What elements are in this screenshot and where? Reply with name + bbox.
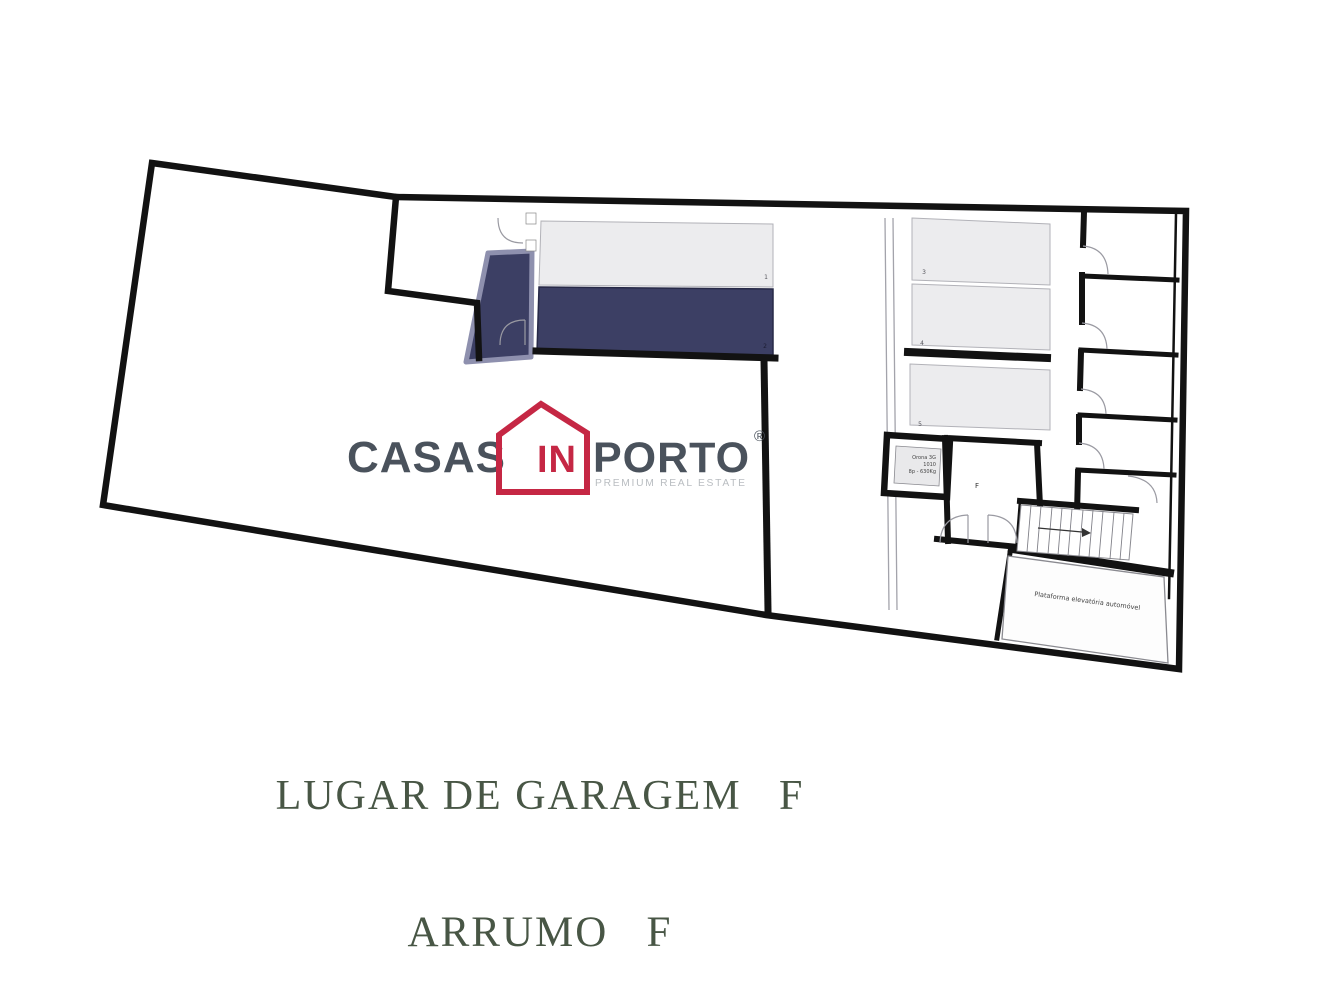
logo-word-porto: PORTO [593, 434, 750, 482]
door-arc-garage-entrance [498, 218, 523, 243]
caption-block: LUGAR DE GARAGEM F ARRUMO F [240, 736, 840, 993]
caption-storage-room: ARRUMO F [240, 908, 840, 957]
caption-garage-space: LUGAR DE GARAGEM F [240, 772, 840, 820]
ramp-edge-lines [885, 218, 897, 610]
elevator-label-line2: 1010 [923, 462, 936, 468]
space-number-4: 4 [920, 340, 924, 347]
brand-logo: CASAS IN PORTO ® PREMIUM REAL ESTATE [330, 395, 790, 500]
logo-word-casas: CASAS [347, 433, 506, 482]
garage-space-f-highlight [537, 287, 773, 355]
door-arc-storeroom-4 [1079, 443, 1104, 469]
door-jamb-bottom [526, 240, 536, 251]
door-arc-storeroom-3 [1081, 389, 1106, 414]
room-f-label: F [975, 482, 979, 490]
space-number-5: 5 [918, 421, 922, 428]
door-arc-storeroom-5 [1128, 476, 1157, 503]
ramp-edge-line [885, 218, 897, 610]
parking-space-1 [539, 221, 773, 287]
elevator-label-line3: 8p - 630Kg [909, 469, 936, 475]
logo-word-in: IN [537, 439, 577, 481]
staircase [1017, 505, 1133, 560]
wall-between-space4-space5 [908, 352, 1047, 358]
staircase-outline [1017, 505, 1133, 560]
right-inner-wall [1169, 214, 1176, 598]
page: 1 2 3 4 5 F Orona 3G 1010 8p - 630Kg Pla… [0, 0, 1324, 1000]
parking-space-4 [912, 284, 1050, 350]
parking-space-5 [910, 364, 1050, 430]
parking-space-3 [912, 218, 1050, 285]
elevator-label-line1: Orona 3G [912, 455, 936, 461]
registered-trademark-icon: ® [754, 428, 765, 445]
notch-wall [388, 197, 479, 358]
logo-tagline: PREMIUM REAL ESTATE [595, 478, 747, 489]
door-arc-storeroom-1 [1083, 246, 1108, 274]
space-number-3: 3 [922, 269, 926, 276]
door-arc-storeroom-2 [1082, 323, 1107, 349]
space-number-2: 2 [763, 343, 767, 350]
door-arc-room-f-right [988, 515, 1017, 543]
door-jamb-top [526, 213, 536, 224]
storage-room-dividers [1078, 276, 1177, 475]
space-number-1: 1 [764, 274, 768, 281]
